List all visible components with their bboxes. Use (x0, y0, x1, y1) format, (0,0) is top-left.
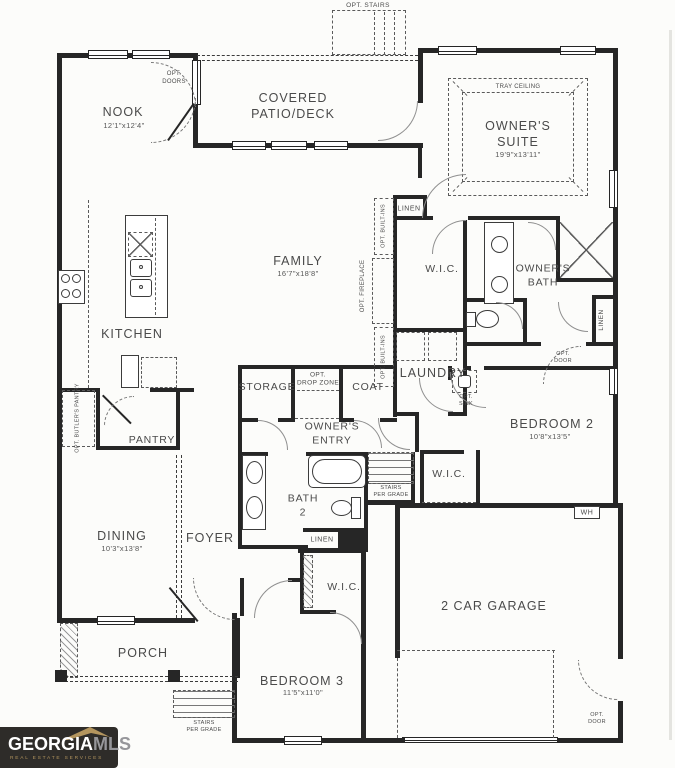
opt-doors-line1: OPT. (162, 71, 186, 79)
wall (395, 503, 400, 658)
porch-column (168, 670, 180, 682)
wall (364, 500, 415, 505)
room-label-storage: STORAGE (239, 381, 296, 395)
washer (396, 332, 425, 361)
owners-entry-line2: ENTRY (305, 434, 360, 448)
owners-bath-line1: OWNER'S (516, 262, 571, 276)
front-door-leaf (169, 587, 199, 622)
wall (361, 548, 366, 743)
linen-hall-label: LINEN (397, 204, 420, 213)
opt-sink-line2: SINK (459, 401, 473, 408)
opt-door-bath-line2: DOOR (554, 358, 572, 365)
wall (303, 528, 341, 532)
georgia-mls-logo: GEORGIAMLS REAL ESTATE SERVICES (0, 727, 118, 768)
opt-cooktop (128, 232, 153, 257)
burner (72, 289, 81, 298)
wall (393, 195, 427, 199)
room-label-garage: 2 CAR GARAGE (441, 598, 547, 614)
door-arc (432, 220, 466, 254)
opt-door-arc (578, 660, 618, 700)
wall (418, 148, 422, 178)
wall (415, 416, 419, 452)
stairs-interior-line1: STAIRS (373, 485, 408, 492)
burner (72, 274, 81, 283)
water-heater-label: WH (581, 508, 594, 517)
door-arc (378, 101, 418, 141)
island-overhang (155, 218, 156, 315)
drop-zone-line2: DROP ZONE (297, 380, 339, 388)
wall (278, 418, 295, 422)
opt-drop-zone-label: OPT. DROP ZONE (297, 372, 339, 389)
opt-door-garage-line1: OPT. (588, 712, 606, 719)
refrigerator (121, 355, 139, 388)
wall (420, 450, 464, 454)
linen-owners-bath-label: LINEN (598, 309, 606, 330)
floor-plan: OPT. STAIRS OPT. DOORS NOOK 12'1"x12'4" … (0, 0, 675, 768)
dryer (428, 332, 457, 361)
opt-cabinet (141, 357, 177, 388)
wall (193, 143, 423, 148)
toilet-tank (351, 497, 361, 519)
room-dims-bedroom2: 10'8"x13'5" (529, 432, 570, 442)
faucet-dot (139, 285, 143, 289)
opt-fireplace-outline (372, 258, 394, 324)
kitchen-counter-edge (88, 200, 89, 388)
logo-tagline: REAL ESTATE SERVICES (10, 756, 103, 761)
logo-brand-primary: GEORGIA (8, 734, 93, 754)
door-arc (558, 302, 588, 332)
door-arc (422, 174, 466, 218)
room-label-covered-patio: COVERED PATIO/DECK (251, 90, 335, 123)
room-label-owners-entry: OWNER'S ENTRY (305, 420, 360, 447)
room-label-kitchen: KITCHEN (101, 326, 163, 342)
sink (491, 236, 508, 253)
owners-suite-line2: SUITE (485, 134, 551, 150)
wall (235, 620, 240, 678)
room-label-bedroom2-wic: W.I.C. (432, 468, 465, 482)
wall (57, 53, 62, 623)
room-dims-owners-suite: 19'9"x13'11" (495, 150, 540, 160)
door-arc (151, 98, 196, 143)
owners-bath-line2: BATH (516, 276, 571, 290)
garage-door (402, 737, 558, 743)
wall (476, 450, 480, 505)
stairs-interior-line2: PER GRADE (373, 492, 408, 499)
logo-brand-secondary: MLS (93, 734, 131, 754)
window (609, 170, 618, 208)
wall (240, 578, 244, 616)
wall (618, 505, 623, 743)
door-arc (254, 580, 292, 618)
interior-stairs (368, 452, 414, 484)
foyer-divider-dashed (176, 455, 182, 618)
owners-entry-line1: OWNER'S (305, 420, 360, 434)
patio-line2: PATIO/DECK (251, 106, 335, 122)
opt-door-owners-bath-label: OPT. DOOR (554, 351, 572, 365)
room-label-foyer: FOYER (186, 530, 234, 546)
opt-door-garage-line2: DOOR (588, 719, 606, 726)
room-label-coat: COAT (352, 381, 384, 395)
window (609, 368, 618, 395)
owners-suite-line1: OWNER'S (485, 118, 551, 134)
stair-tread (384, 12, 385, 55)
tray-ceiling-label: TRAY CEILING (496, 84, 541, 92)
window (271, 141, 307, 150)
door-arc (528, 222, 556, 250)
wall (238, 545, 308, 549)
opt-door-bath-line1: OPT. (554, 351, 572, 358)
room-label-owners-bath: OWNER'S BATH (516, 262, 571, 289)
room-label-nook: NOOK (103, 104, 144, 120)
window (88, 50, 128, 59)
wall (420, 450, 424, 505)
window (314, 141, 348, 150)
sink (246, 496, 263, 519)
opt-door-gap (618, 659, 623, 701)
porch-stairs (173, 690, 235, 718)
patio-edge-dashed (197, 55, 418, 61)
opt-doors-line2: DOORS (162, 79, 186, 87)
wic2-open-edge (422, 502, 476, 503)
room-label-laundry: LAUNDRY (400, 365, 467, 381)
burner (61, 289, 70, 298)
garage-opt-line (553, 650, 554, 738)
wall (592, 295, 613, 299)
opt-wall-dashed (397, 658, 398, 738)
room-label-bedroom3-wic: W.I.C. (327, 581, 360, 595)
room-label-pantry: PANTRY (129, 434, 175, 448)
linen-bath2-label: LINEN (310, 535, 333, 544)
wall (463, 342, 541, 346)
wic3-hatch (303, 555, 313, 608)
window (232, 141, 266, 150)
room-label-bath2: BATH 2 (288, 492, 318, 519)
toilet-bowl (331, 500, 352, 516)
drop-zone-open-edge (295, 418, 339, 419)
wall (448, 412, 467, 416)
window (284, 736, 322, 745)
room-label-owners-wic: W.I.C. (425, 263, 458, 277)
wall (586, 342, 613, 346)
opt-stairs-label: OPT. STAIRS (346, 2, 390, 10)
opt-sink-line1: OPT. (459, 394, 473, 401)
wall (176, 388, 194, 392)
stairs-porch-line1: STAIRS (186, 720, 221, 727)
window (132, 50, 170, 59)
toilet-tank (466, 312, 476, 327)
opt-builtins-lower-label: OPT. BUILT-INS (380, 335, 387, 379)
door-arc (496, 302, 523, 329)
tub-basin (312, 459, 362, 484)
opt-door-garage-label: OPT. DOOR (588, 712, 606, 726)
wall-solid-chunk (338, 528, 364, 552)
opt-builtins-upper-label: OPT. BUILT-INS (380, 204, 387, 248)
opt-sink-label: OPT. SINK (459, 394, 473, 408)
stair-tread (394, 12, 395, 55)
room-dims-nook: 12'1"x12'4" (103, 121, 144, 131)
wall (418, 53, 423, 103)
porch-edge-dashed (60, 676, 238, 682)
bath2-line1: BATH (288, 492, 318, 506)
window (97, 616, 135, 625)
room-label-porch: PORCH (118, 645, 168, 661)
sink (491, 276, 508, 293)
faucet-dot (139, 265, 143, 269)
logo-brand: GEORGIAMLS (8, 734, 131, 755)
room-dims-bedroom3: 11'5"x11'0" (283, 688, 323, 698)
room-label-family: FAMILY (273, 253, 323, 269)
window (438, 46, 477, 55)
door-arc (258, 420, 288, 450)
wall (523, 298, 527, 346)
wall (176, 388, 180, 450)
drop-zone-bench (297, 390, 339, 391)
door-arc (419, 378, 453, 412)
wall (238, 422, 242, 454)
wall (339, 365, 343, 422)
stair-tread (374, 12, 375, 55)
stairs-per-grade-porch-label: STAIRS PER GRADE (186, 720, 221, 734)
window (560, 46, 596, 55)
room-label-bedroom2: BEDROOM 2 (510, 416, 594, 432)
wall (96, 388, 100, 450)
wall (468, 216, 560, 220)
front-door-arc (193, 578, 235, 620)
scan-edge-artifact (669, 30, 672, 740)
room-dims-dining: 10'3"x13'8" (101, 544, 142, 554)
sink (246, 461, 263, 484)
bath2-line2: 2 (288, 506, 318, 520)
garage-opt-line (397, 650, 555, 651)
room-label-dining: DINING (97, 528, 147, 544)
burner (61, 274, 70, 283)
room-label-bedroom3: BEDROOM 3 (260, 673, 344, 689)
room-dims-family: 16'7"x18'8" (277, 269, 318, 279)
stairs-porch-line2: PER GRADE (186, 727, 221, 734)
door-arc (378, 418, 410, 450)
opt-doors-label: OPT. DOORS (162, 71, 186, 87)
wall (556, 738, 623, 743)
stairs-per-grade-interior-label: STAIRS PER GRADE (373, 485, 408, 499)
opt-butlers-pantry-label: OPT. BUTLER'S PANTRY (74, 383, 81, 453)
drop-zone-line1: OPT. (297, 372, 339, 380)
wall (592, 295, 596, 346)
door-arc (330, 612, 362, 644)
room-label-owners-suite: OWNER'S SUITE (485, 118, 551, 151)
porch-column (55, 670, 67, 682)
opt-fireplace-label: OPT. FIREPLACE (360, 260, 368, 313)
patio-line1: COVERED (251, 90, 335, 106)
